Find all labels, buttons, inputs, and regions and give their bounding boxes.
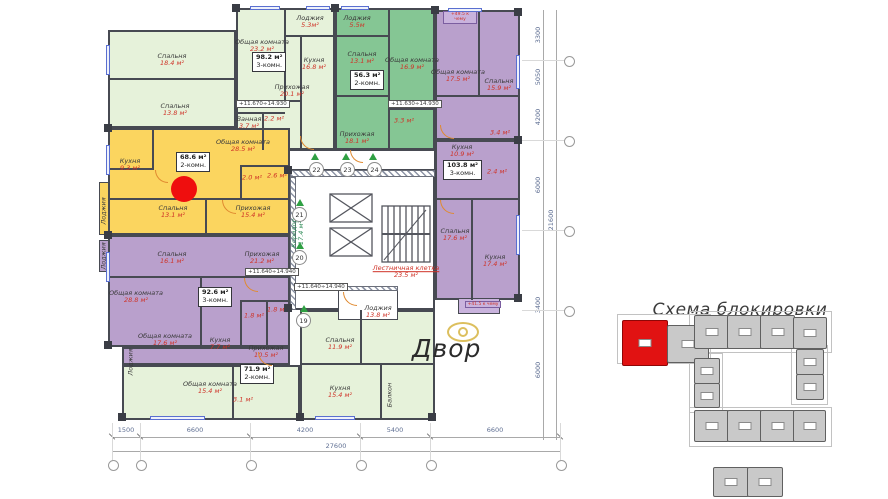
block-number-chip xyxy=(759,478,772,486)
scheme-block[interactable] xyxy=(694,315,729,349)
scheme-block[interactable] xyxy=(694,383,720,408)
room-label: Спальня13.1 м² xyxy=(348,51,377,65)
apartment-bottom-east[interactable] xyxy=(300,310,435,420)
grid-bubble xyxy=(564,136,575,147)
window xyxy=(448,8,482,12)
window xyxy=(150,416,205,420)
block-number-chip xyxy=(705,422,718,430)
block-number-chip xyxy=(738,422,751,430)
column xyxy=(104,341,112,349)
room-area: 2.4 м² xyxy=(487,169,507,176)
room-label: Кухня16.8 м² xyxy=(302,57,326,71)
entrance-23: 23 xyxy=(340,162,355,177)
wall xyxy=(360,310,362,363)
apartment-summary: 56.3 м²2-комн. xyxy=(350,70,384,90)
scheme-block[interactable] xyxy=(793,317,827,349)
room-label: Кухня15.4 м² xyxy=(328,385,352,399)
window xyxy=(516,55,520,89)
room-area: 15.4 м² xyxy=(183,388,237,395)
dimension-value: 1500 xyxy=(118,426,135,434)
dimension-value: 6600 xyxy=(187,426,204,434)
room-area: 15.4 м² xyxy=(328,392,352,399)
wall xyxy=(240,165,242,200)
apartment-summary: 98.2 м²3-комн. xyxy=(252,52,286,72)
block-number-chip xyxy=(771,328,784,336)
room-label: Общая комната17.6 м² xyxy=(138,333,192,347)
room-label: Общая комната28.5 м² xyxy=(216,139,270,153)
room-area: 18.1 м² xyxy=(340,138,375,145)
room-label: 3.1 м² xyxy=(233,397,253,404)
block-number-chip xyxy=(804,358,817,366)
entrance-22: 22 xyxy=(309,162,324,177)
selected-apartment-marker[interactable] xyxy=(171,176,197,202)
room-area: 28.5 м² xyxy=(216,146,270,153)
column xyxy=(296,413,304,421)
entrance-triangle xyxy=(296,199,304,206)
window xyxy=(106,145,110,175)
elevation-mark: +11.640÷14.940 xyxy=(294,283,348,291)
room-area: 16.8 м² xyxy=(302,64,326,71)
column xyxy=(232,4,240,12)
wall xyxy=(240,300,290,302)
room-label: Кухня17.4 м² xyxy=(483,254,507,268)
entrance-triangle xyxy=(296,242,304,249)
room-label: Спальня15.9 м² xyxy=(485,78,514,92)
column xyxy=(331,4,339,12)
elevation-mark: +11.640÷14.940 xyxy=(245,268,299,276)
room-area: 17.6 м² xyxy=(138,340,192,347)
grid-bubble xyxy=(136,460,147,471)
scheme-block[interactable] xyxy=(727,410,762,442)
wall xyxy=(300,363,435,365)
column xyxy=(514,8,522,16)
column xyxy=(118,413,126,421)
entrance-triangle xyxy=(311,153,319,160)
wall xyxy=(108,198,290,200)
room-label: Ванная3.7 м² xyxy=(237,116,262,130)
room-label: Общая комната23.2 м² xyxy=(235,39,289,53)
room-label: Спальня18.4 м² xyxy=(158,53,187,67)
room-name: Лоджия xyxy=(128,348,135,375)
block-number-chip xyxy=(682,340,695,348)
window xyxy=(306,6,330,10)
room-label: Прихожая20.1 м² xyxy=(275,84,310,98)
entrance-triangle xyxy=(342,153,350,160)
grid-bubble xyxy=(356,460,367,471)
wall xyxy=(471,198,473,300)
room-label: Кухня10.9 м² xyxy=(450,144,474,158)
room-label: Лоджия xyxy=(128,348,135,375)
scheme-block[interactable] xyxy=(760,315,795,349)
block-number-chip xyxy=(639,339,652,347)
column xyxy=(104,124,112,132)
window xyxy=(106,252,110,282)
wall xyxy=(108,276,290,278)
room-label: Лоджия5.3м² xyxy=(296,15,323,29)
column xyxy=(284,304,292,312)
scheme-block[interactable] xyxy=(727,315,762,349)
room-area: 17.5 м² xyxy=(431,76,485,83)
dimension-value: 6000 xyxy=(534,177,542,194)
dimension-value: 3300 xyxy=(534,27,542,44)
dimension-line xyxy=(556,10,557,440)
scheme-block[interactable] xyxy=(796,349,824,375)
summary-type: 2-комн. xyxy=(180,162,206,170)
room-label: Балкон xyxy=(387,383,394,408)
room-area: 3.1 м² xyxy=(233,397,253,404)
room-label: 3.4 м² xyxy=(490,130,510,137)
courtyard-label: Двор xyxy=(412,334,481,363)
scheme-block[interactable] xyxy=(694,410,729,442)
grid-line xyxy=(250,423,251,463)
wall xyxy=(388,8,390,150)
room-area: 3.7 м² xyxy=(237,123,262,130)
entrance-triangle xyxy=(369,153,377,160)
room-area: 13.1 м² xyxy=(348,58,377,65)
grid-bubble xyxy=(564,226,575,237)
room-label: Спальня17.6 м² xyxy=(441,228,470,242)
column xyxy=(514,136,522,144)
apartment-summary: 68.6 м²2-комн. xyxy=(176,152,210,172)
balcony-chip: +41.5 к чему xyxy=(465,301,501,308)
grid-line xyxy=(430,423,431,463)
room-label: Прихожая15.4 м² xyxy=(236,205,271,219)
grid-bubble xyxy=(426,460,437,471)
grid-bubble xyxy=(246,460,257,471)
wall xyxy=(284,35,335,37)
balcony-chip: +49.5 к чему xyxy=(443,11,477,24)
grid-bubble xyxy=(564,56,575,67)
room-area: 17.4 м² xyxy=(483,261,507,268)
entrance-21: 21 xyxy=(292,207,307,222)
column xyxy=(284,166,292,174)
room-area: 5.5м xyxy=(343,22,370,29)
room-label: Прихожая21.2 м² xyxy=(245,251,280,265)
room-label: 2.4 м² xyxy=(487,169,507,176)
dimension-value: 6600 xyxy=(487,426,504,434)
wall xyxy=(152,128,154,170)
window xyxy=(516,215,520,255)
apartment-summary: 103.8 м²3-комн. xyxy=(443,160,482,180)
room-label: Общая комната15.4 м² xyxy=(183,381,237,395)
grid-line xyxy=(560,423,561,463)
dimension-value: 6000 xyxy=(534,362,542,379)
dimension-value: 5400 xyxy=(387,426,404,434)
dimension-total: 27600 xyxy=(326,442,347,450)
entrance-20: 20 xyxy=(292,250,307,265)
block-number-chip xyxy=(803,422,816,430)
apartment-summary: 71.9 м²2-комн. xyxy=(240,364,274,384)
room-label: Прихожая18.1 м² xyxy=(340,131,375,145)
room-area: 28.8 м² xyxy=(109,297,163,304)
wall xyxy=(435,95,520,97)
dimension-value: 4200 xyxy=(534,109,542,126)
summary-type: 3-комн. xyxy=(256,62,282,70)
elevation-mark: +11.670÷14.930 xyxy=(236,100,290,108)
scheme-block[interactable] xyxy=(760,410,795,442)
summary-type: 3-комн. xyxy=(202,297,228,305)
scheme-block-current[interactable] xyxy=(622,320,668,366)
room-label: Кухня9.3 м² xyxy=(120,158,140,172)
room-area: 17.6 м² xyxy=(441,235,470,242)
dimension-total: 21600 xyxy=(547,210,555,231)
scheme-block[interactable] xyxy=(713,467,749,497)
scheme-block[interactable] xyxy=(796,374,824,400)
wall xyxy=(335,35,390,37)
dimension-line xyxy=(543,10,544,440)
room-area: 5.3м² xyxy=(296,22,323,29)
wall xyxy=(240,300,242,347)
room-label: Лоджия13.8 м² xyxy=(364,305,391,319)
room-area: 11.9 м² xyxy=(326,344,355,351)
room-label: Общая комната17.5 м² xyxy=(431,69,485,83)
room-label: 2.0 м² xyxy=(242,175,262,182)
window xyxy=(250,6,280,10)
block-number-chip xyxy=(701,392,714,400)
wall xyxy=(108,78,236,80)
summary-type: 2-комн. xyxy=(354,80,380,88)
room-area: 9.3 м² xyxy=(120,165,140,172)
room-area: 1.8 м² xyxy=(244,313,264,320)
room-area: 15.9 м² xyxy=(485,85,514,92)
room-area: 10.9 м² xyxy=(450,151,474,158)
dimension-value: 5050 xyxy=(534,69,542,86)
grid-line xyxy=(112,423,113,463)
room-area: 13.8 м² xyxy=(161,110,190,117)
room-area: 2.0 м² xyxy=(242,175,262,182)
room-area: 16.1 м² xyxy=(158,258,187,265)
room-area: 7.7 м² xyxy=(210,344,230,351)
room-label: Лоджия5.5м xyxy=(343,15,370,29)
room-name: Лоджия xyxy=(101,197,108,224)
entrance-24: 24 xyxy=(367,162,382,177)
column xyxy=(104,231,112,239)
room-label: Общая комната28.8 м² xyxy=(109,290,163,304)
window xyxy=(106,45,110,75)
room-area: 23.5 м² xyxy=(373,272,440,279)
grid-bubble xyxy=(564,306,575,317)
room-label: Спальня13.8 м² xyxy=(161,103,190,117)
room-label: Спальня16.1 м² xyxy=(158,251,187,265)
room-label: Кухня7.7 м² xyxy=(210,337,230,351)
window xyxy=(341,6,369,10)
room-area: 20.1 м² xyxy=(275,91,310,98)
dimension-value: 4200 xyxy=(297,426,314,434)
wall xyxy=(380,365,382,420)
wall xyxy=(335,95,390,97)
stairwell-label: Лестничная клетка23.5 м² xyxy=(373,265,440,279)
column xyxy=(514,294,522,302)
scheme-block[interactable] xyxy=(694,358,720,384)
block-number-chip xyxy=(804,329,817,337)
room-label: Спальня11.9 м² xyxy=(326,337,355,351)
scheme-block[interactable] xyxy=(747,467,783,497)
room-area: 3.4 м² xyxy=(490,130,510,137)
summary-type: 2-комн. xyxy=(244,374,270,382)
scheme-block[interactable] xyxy=(793,410,826,442)
grid-bubble xyxy=(108,460,119,471)
apartment-summary: 92.6 м²3-комн. xyxy=(198,287,232,307)
wall xyxy=(388,108,435,110)
room-area: 2.2 м² xyxy=(264,116,284,123)
entrance-19: 19 xyxy=(296,313,311,328)
grid-bubble xyxy=(556,460,567,471)
grid-line xyxy=(360,423,361,463)
block-number-chip xyxy=(705,328,718,336)
entrance-triangle xyxy=(300,305,308,312)
block-number-chip xyxy=(804,383,817,391)
room-area: 13.8 м² xyxy=(364,312,391,319)
column xyxy=(431,6,439,14)
room-name: Балкон xyxy=(387,383,394,408)
room-area: 18.4 м² xyxy=(158,60,187,67)
room-area: 3.3 м² xyxy=(394,118,414,125)
room-area: 15.4 м² xyxy=(236,212,271,219)
room-label: 2.2 м² xyxy=(264,116,284,123)
room-label: 1.8 м² xyxy=(244,313,264,320)
room-label: Лоджия xyxy=(101,197,108,224)
elevation-mark: +11.630÷14.930 xyxy=(388,100,442,108)
block-number-chip xyxy=(738,328,751,336)
dimension-line xyxy=(112,451,560,452)
wall xyxy=(240,165,290,167)
room-area: 13.1 м² xyxy=(159,212,188,219)
dimension-line xyxy=(112,437,560,438)
room-label: Спальня13.1 м² xyxy=(159,205,188,219)
room-label: 3.3 м² xyxy=(394,118,414,125)
window xyxy=(315,416,355,420)
grid-line xyxy=(140,423,141,463)
block-number-chip xyxy=(725,478,738,486)
wall xyxy=(205,198,207,235)
block-number-chip xyxy=(701,367,714,375)
block-number-chip xyxy=(771,422,784,430)
room-area: 21.2 м² xyxy=(245,258,280,265)
floor-plan-page: Спальня18.4 м² Спальня13.8 м² Лоджия5.3м… xyxy=(0,0,888,499)
summary-type: 3-комн. xyxy=(447,170,478,178)
column xyxy=(428,413,436,421)
